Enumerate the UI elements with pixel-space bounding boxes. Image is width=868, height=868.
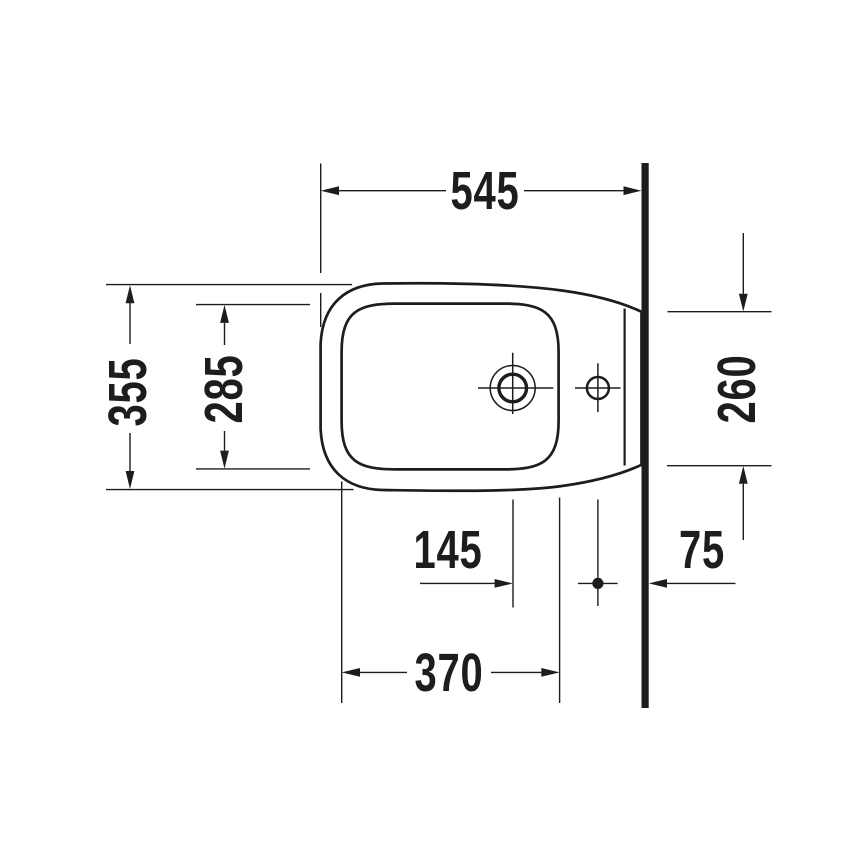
dim-370-arrow-left <box>342 668 360 677</box>
dimension-label-wall-contact-width: 260 <box>710 354 764 423</box>
dim-dot-centerlines <box>578 500 618 607</box>
fixing-hole-crosshair <box>575 363 621 412</box>
dim-355-arrow-bottom <box>126 471 135 489</box>
dim-260-arrow-bottom <box>739 466 748 484</box>
dimension-label-overall-width: 355 <box>101 357 155 426</box>
dim-common-point <box>578 500 618 607</box>
dim-545-arrow-right <box>624 186 642 195</box>
dim-370-arrow-right <box>541 668 559 677</box>
dim-285-arrow-bottom <box>220 451 229 469</box>
dim-75-arrow <box>649 579 667 588</box>
tap-hole-crosshair <box>478 353 553 414</box>
technical-drawing-canvas: 545 355 285 260 145 75 370 <box>0 0 868 868</box>
tap-hole <box>478 353 553 414</box>
dimension-label-tap-hole-to-fixing-hole: 145 <box>414 523 483 577</box>
dim-75 <box>649 579 736 588</box>
dimension-label-basin-width: 285 <box>197 354 251 423</box>
dimension-label-fixing-hole-to-wall: 75 <box>679 523 725 577</box>
dim-545-arrow-left <box>321 186 339 195</box>
fixing-hole <box>575 363 621 412</box>
bidet-outer-outline <box>321 283 642 491</box>
dim-285-arrow-top <box>220 305 229 323</box>
dim-260-arrow-top <box>739 294 748 312</box>
dim-dot <box>592 578 603 589</box>
dim-145-arrow <box>495 579 513 588</box>
dimension-label-basin-length: 370 <box>414 646 483 700</box>
drawing-linework <box>0 0 868 868</box>
dimension-label-overall-depth: 545 <box>451 164 520 218</box>
dim-355-arrow-top <box>126 285 135 303</box>
